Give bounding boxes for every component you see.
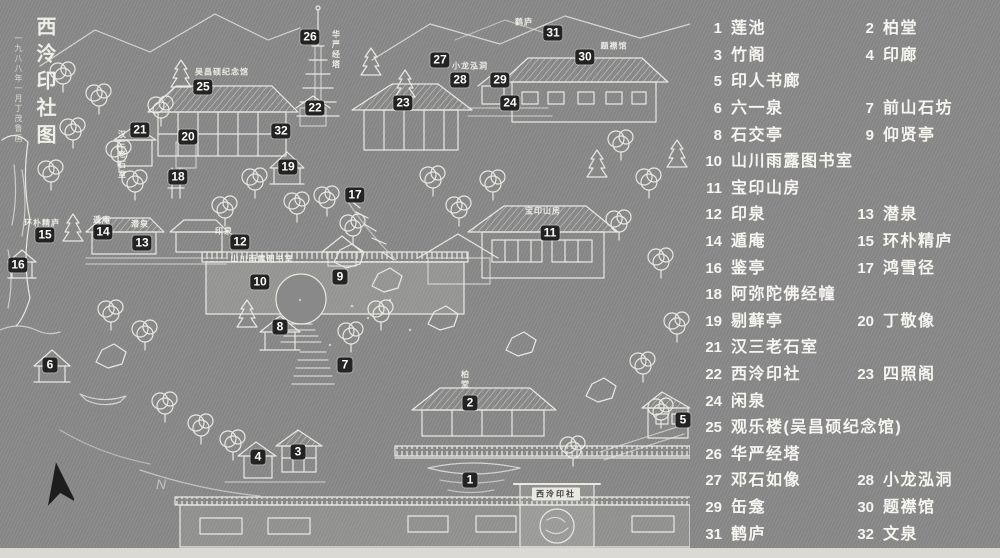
legend-entry-number: 1: [700, 20, 722, 37]
map-marker-3: 3: [291, 445, 306, 460]
legend-row: 29缶龛30题襟馆: [700, 492, 996, 519]
legend-entry-number: 14: [700, 233, 722, 250]
legend-entry-label: 汉三老石室: [731, 333, 819, 357]
legend-entry-label: 闲泉: [731, 387, 766, 411]
map-marker-14: 14: [93, 225, 112, 240]
legend-entry-label: 宝印山房: [731, 174, 801, 198]
legend-entry: 5印人书廊: [700, 67, 852, 91]
map-marker-11: 11: [541, 226, 560, 241]
legend-entry: 4印廊: [852, 41, 996, 65]
legend-row: 1莲池2柏堂: [700, 13, 996, 40]
map-marker-29: 29: [490, 73, 509, 88]
legend-entry-label: 小龙泓洞: [883, 466, 953, 490]
north-label: N: [156, 476, 166, 492]
legend-entry: 1莲池: [700, 14, 852, 38]
legend-entry: 26华严经塔: [700, 440, 852, 464]
legend-entry: 17鸿雪径: [852, 254, 996, 278]
legend-entry-label: 前山石坊: [883, 94, 953, 118]
legend-entry-number: 13: [852, 206, 874, 223]
legend-entry-number: 19: [700, 313, 722, 330]
map-caption: 吴昌硕纪念馆: [195, 67, 249, 78]
map-caption: 汉三老石室: [117, 130, 128, 180]
legend-entry: 18阿弥陀佛经幢: [700, 280, 852, 304]
legend-entry-number: 32: [852, 526, 874, 543]
legend-entry-number: 12: [700, 206, 722, 223]
legend-entry-label: 观乐楼(吴昌硕纪念馆): [731, 413, 902, 437]
legend-entry-number: 5: [700, 73, 722, 90]
legend-row: 3竹阁4印廊: [700, 40, 996, 67]
legend-entry-number: 10: [700, 153, 722, 170]
legend-entry-number: 6: [700, 100, 722, 117]
legend-row: 21汉三老石室: [700, 332, 996, 359]
map-marker-17: 17: [345, 188, 364, 203]
legend-entry-number: 16: [700, 260, 722, 277]
map-marker-5: 5: [676, 413, 691, 428]
map-marker-30: 30: [575, 50, 594, 65]
map-marker-16: 16: [8, 258, 27, 273]
xiling-seal-society-map-page: 西泠印社图 一九八八年一月丁茂鲁画 1234567891011121314151…: [0, 0, 1000, 558]
map-marker-2: 2: [463, 396, 478, 411]
legend-row: 18阿弥陀佛经幢: [700, 279, 996, 306]
legend: 1莲池2柏堂3竹阁4印廊5印人书廊6六一泉7前山石坊8石交亭9仰贤亭10山川雨露…: [700, 13, 996, 545]
map-marker-7: 7: [338, 358, 353, 373]
legend-entry: 25观乐楼(吴昌硕纪念馆): [700, 413, 852, 437]
legend-entry: 28小龙泓洞: [852, 466, 996, 490]
legend-row: 16鉴亭17鸿雪径: [700, 252, 996, 279]
legend-entry-label: 缶龛: [731, 493, 766, 517]
legend-entry-number: 27: [700, 472, 722, 489]
legend-entry-number: 17: [852, 260, 874, 277]
legend-entry-label: 印廊: [883, 41, 918, 65]
legend-entry-label: 四照阁: [883, 360, 936, 384]
legend-entry-number: 22: [700, 366, 722, 383]
legend-entry-number: 4: [852, 47, 874, 64]
map-marker-12: 12: [230, 235, 249, 250]
legend-row: 14遁庵15环朴精庐: [700, 226, 996, 253]
map-marker-27: 27: [430, 53, 449, 68]
map-marker-18: 18: [168, 170, 187, 185]
legend-entry-number: 28: [852, 472, 874, 489]
map-marker-15: 15: [35, 228, 54, 243]
map-marker-20: 20: [178, 130, 197, 145]
legend-entry-label: 印人书廊: [731, 67, 801, 91]
map-marker-21: 21: [130, 123, 149, 138]
legend-entry: 14遁庵: [700, 227, 852, 251]
legend-entry: 9仰贤亭: [852, 121, 996, 145]
legend-row: 11宝印山房: [700, 173, 996, 200]
map-marker-10: 10: [250, 275, 269, 290]
legend-entry-label: 鸿雪径: [883, 254, 936, 278]
legend-entry-label: 山川雨露图书室: [731, 147, 854, 171]
map-marker-19: 19: [278, 160, 297, 175]
legend-entry-number: 25: [700, 419, 722, 436]
map-caption: 华严经塔: [331, 30, 342, 70]
legend-entry-number: 15: [852, 233, 874, 250]
legend-row: 10山川雨露图书室: [700, 146, 996, 173]
legend-entry-number: 23: [852, 366, 874, 383]
legend-entry: 30题襟馆: [852, 493, 996, 517]
legend-entry-label: 仰贤亭: [883, 121, 936, 145]
legend-entry: 16鉴亭: [700, 254, 852, 278]
legend-entry: 29缶龛: [700, 493, 852, 517]
map-marker-22: 22: [305, 101, 324, 116]
legend-row: 26华严经塔: [700, 439, 996, 466]
legend-entry-number: 7: [852, 100, 874, 117]
map-marker-6: 6: [43, 358, 58, 373]
legend-entry-number: 3: [700, 47, 722, 64]
legend-row: 27邓石如像28小龙泓洞: [700, 465, 996, 492]
legend-entry: 32文泉: [852, 520, 996, 544]
legend-entry: 24闲泉: [700, 387, 852, 411]
map-caption: 山川雨露图书室: [231, 254, 294, 265]
legend-entry: 20丁敬像: [852, 307, 996, 331]
legend-row: 24闲泉: [700, 385, 996, 412]
legend-entry-label: 丁敬像: [883, 307, 936, 331]
map-marker-1: 1: [463, 473, 478, 488]
legend-entry: 19剔藓亭: [700, 307, 852, 331]
map-marker-9: 9: [333, 270, 348, 285]
legend-entry-label: 石交亭: [731, 121, 784, 145]
legend-row: 19剔藓亭20丁敬像: [700, 306, 996, 333]
legend-entry-label: 文泉: [883, 520, 918, 544]
map-marker-8: 8: [273, 320, 288, 335]
map-marker-28: 28: [450, 73, 469, 88]
map-caption: 题襟馆: [601, 41, 628, 52]
legend-entry-number: 8: [700, 127, 722, 144]
legend-entry-number: 24: [700, 393, 722, 410]
legend-entry-number: 29: [700, 499, 722, 516]
legend-row: 25观乐楼(吴昌硕纪念馆): [700, 412, 996, 439]
legend-entry: 8石交亭: [700, 121, 852, 145]
legend-row: 5印人书廊: [700, 66, 996, 93]
legend-entry-label: 印泉: [731, 200, 766, 224]
map-marker-26: 26: [300, 30, 319, 45]
legend-entry: 23四照阁: [852, 360, 996, 384]
map-marker-25: 25: [193, 80, 212, 95]
legend-row: 6六一泉7前山石坊: [700, 93, 996, 120]
legend-entry-label: 剔藓亭: [731, 307, 784, 331]
north-arrow-icon: [44, 462, 74, 511]
page-bottom-strip: [0, 548, 1000, 558]
map-marker-13: 13: [132, 236, 151, 251]
legend-entry-label: 柏堂: [883, 14, 918, 38]
legend-entry-number: 20: [852, 313, 874, 330]
legend-entry: 10山川雨露图书室: [700, 147, 852, 171]
map-caption: 柏堂: [460, 370, 471, 390]
map-marker-24: 24: [500, 96, 519, 111]
legend-entry-label: 莲池: [731, 14, 766, 38]
legend-entry: 22西泠印社: [700, 360, 852, 384]
legend-entry: 12印泉: [700, 200, 852, 224]
gate-plaque: 西泠印社: [532, 488, 580, 501]
legend-entry-label: 环朴精庐: [883, 227, 953, 251]
legend-entry-number: 18: [700, 286, 722, 303]
legend-entry-label: 竹阁: [731, 41, 766, 65]
legend-entry: 13潜泉: [852, 200, 996, 224]
legend-entry-number: 31: [700, 526, 722, 543]
map-marker-4: 4: [251, 450, 266, 465]
legend-entry-number: 30: [852, 499, 874, 516]
map-caption: 宝印山房: [525, 206, 561, 217]
legend-entry-number: 21: [700, 339, 722, 356]
legend-entry-number: 11: [700, 180, 722, 197]
legend-row: 8石交亭9仰贤亭: [700, 119, 996, 146]
map-marker-31: 31: [543, 26, 562, 41]
legend-entry: 7前山石坊: [852, 94, 996, 118]
legend-entry-label: 阿弥陀佛经幢: [731, 280, 836, 304]
legend-entry-label: 潜泉: [883, 200, 918, 224]
map-title: 西泠印社图: [30, 16, 59, 151]
legend-row: 12印泉13潜泉: [700, 199, 996, 226]
legend-entry: 2柏堂: [852, 14, 996, 38]
legend-entry-label: 鉴亭: [731, 254, 766, 278]
map-subtitle: 一九八八年一月丁茂鲁画: [13, 34, 24, 144]
legend-entry: 15环朴精庐: [852, 227, 996, 251]
legend-entry-label: 题襟馆: [883, 493, 936, 517]
legend-entry-label: 西泠印社: [731, 360, 801, 384]
legend-entry: 31鹤庐: [700, 520, 852, 544]
legend-entry-label: 华严经塔: [731, 440, 801, 464]
legend-entry-label: 邓石如像: [731, 466, 801, 490]
legend-entry: 11宝印山房: [700, 174, 852, 198]
map-caption: 潜泉: [131, 219, 149, 230]
legend-entry: 27邓石如像: [700, 466, 852, 490]
legend-entry-number: 2: [852, 20, 874, 37]
map-caption: 鹤庐: [515, 17, 533, 28]
map-marker-32: 32: [271, 124, 290, 139]
legend-entry-label: 鹤庐: [731, 520, 766, 544]
legend-entry-label: 遁庵: [731, 227, 766, 251]
legend-entry: 21汉三老石室: [700, 333, 852, 357]
legend-entry: 6六一泉: [700, 94, 852, 118]
legend-row: 22西泠印社23四照阁: [700, 359, 996, 386]
map-marker-23: 23: [393, 96, 412, 111]
legend-entry-number: 9: [852, 127, 874, 144]
legend-row: 31鹤庐32文泉: [700, 518, 996, 545]
legend-entry-label: 六一泉: [731, 94, 784, 118]
legend-entry: 3竹阁: [700, 41, 852, 65]
map-caption: 小龙泓洞: [452, 61, 488, 72]
legend-entry-number: 26: [700, 446, 722, 463]
